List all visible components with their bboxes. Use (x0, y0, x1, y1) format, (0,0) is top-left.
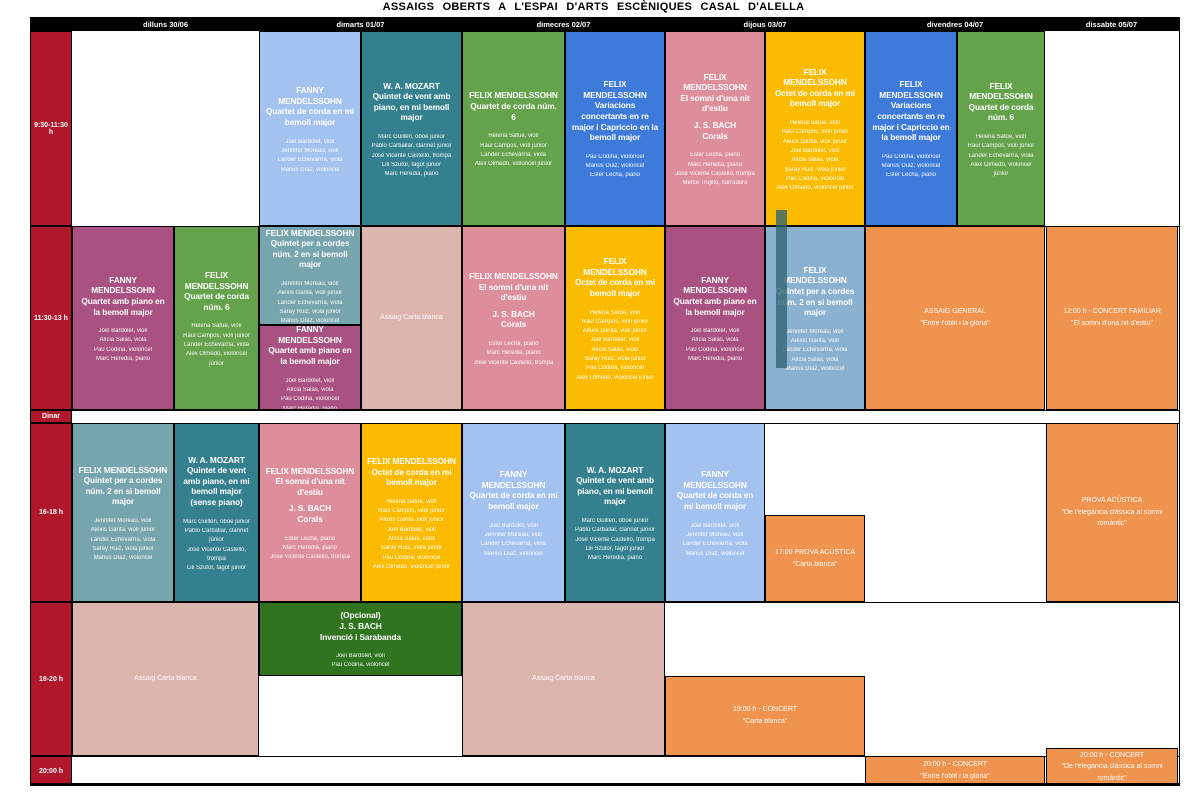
event-cell-r4-mon: Assaig Carta blanca (72, 602, 259, 756)
event-title-line: Quintet de vent amb piano, en mi bemoll … (180, 465, 253, 497)
event-title-block: FELIX MENDELSSOHNQuintet per a cordes nú… (265, 228, 355, 270)
event-performer: Helena Satué, violí (180, 322, 253, 331)
event-title-line: Quartet de corda núm. 6 (963, 102, 1039, 123)
event-title-block: Assaig Carta blanca (134, 673, 197, 685)
event-cell-r2-wed2: FELIX MENDELSSOHNOctet de corda en mi be… (565, 226, 665, 410)
time-slot-label-r2: 11:30-13 h (30, 226, 72, 410)
event-cell-r5-sat: 20:00 h - CONCERT"De l'elegància clàssic… (1046, 748, 1178, 786)
event-title-line: FANNY MENDELSSOHN (671, 469, 759, 490)
page-title: ASSAIGS OBERTS A L'ESPAI D'ARTS ESCÈNIQU… (0, 1, 1187, 13)
event-title-line: FELIX MENDELSSOHN (468, 90, 559, 101)
event-performer: Alex Olmedo, violoncel júnior (576, 374, 653, 383)
event-title-line: Octet de corda en mi bemoll major (571, 277, 659, 298)
event-title-line: Assaig Carta blanca (134, 673, 197, 685)
event-performer: Raul Campos, violí júnior (576, 318, 653, 327)
event-performer: Alícia Salas, viola (686, 336, 744, 345)
event-performer: Joel Bardolet, violí (94, 327, 152, 336)
event-title-line: 20:00 h - CONCERT (920, 759, 989, 771)
event-performer: Alexis Garita, violí júnior (277, 289, 342, 298)
day-header-dimecres: dimecres 02/07 (462, 17, 665, 31)
event-cell-r4-wed: Assaig Carta blanca (462, 602, 665, 756)
event-performer: Pau Codina, violoncel (882, 153, 941, 162)
event-performer: Alícia Salas, viola (373, 535, 450, 544)
event-performer: Joel Bardolet, violí (682, 522, 747, 531)
event-performer: Marc Heredia, piano (474, 349, 554, 358)
event-performers-list: Helena Satué, violíRaul Campos, violí jú… (576, 309, 653, 383)
event-title-line: FELIX MENDELSSOHN (671, 72, 759, 93)
event-title-block: FANNY MENDELSSOHNQuartet de corda en mi … (671, 469, 759, 511)
event-title-block: FELIX MENDELSSOHNOctet de corda en mi be… (367, 456, 456, 488)
event-performer: Alex Olmedo, violoncel júnior (475, 160, 552, 169)
event-performer: Pau Codina, violoncel (686, 346, 744, 355)
event-performers-list: Jennifer Moreau, violíAlexis Garita, vio… (277, 280, 342, 325)
event-title-block: FELIX MENDELSSOHNOctet de corda en mi be… (771, 67, 859, 109)
event-performer: Alícia Salas, viola (576, 346, 653, 355)
event-title-line: Corals (694, 131, 736, 142)
event-cell-r1-tue1: FANNY MENDELSSOHNQuartet de corda en mi … (259, 31, 361, 226)
event-performer: Lili Szutor, fagot júnior (575, 545, 655, 554)
event-performers-list: Ester Lecha, pianoMarc Heredia, pianoJos… (270, 535, 350, 563)
event-performer: Joel Bardolet, violí (576, 336, 653, 345)
event-performer: Pau Codina, violoncel (576, 364, 653, 373)
event-cell-r1-thu2: FELIX MENDELSSOHNOctet de corda en mi be… (765, 31, 865, 226)
event-title-block: 17:00 PROVA ACÚSTICA"Carta blanca" (775, 547, 855, 570)
event-title-line: Corals (492, 319, 534, 330)
event-cell-r2-thu1: FANNY MENDELSSOHNQuartet amb piano en la… (665, 226, 765, 410)
event-performers-list: Helena Satué, violíRaul Campos, violí jú… (776, 119, 853, 193)
event-performers-list: Jennifer Moreau, violíAlexis Garita, vio… (90, 517, 155, 563)
event-title-block: FELIX MENDELSSOHNEl somni d'una nit d'es… (671, 72, 759, 114)
event-performer: Marc Heredia, piano (371, 170, 451, 179)
event-title-block: J. S. BACHCorals (289, 503, 331, 524)
event-performers-list: Joel Bardolet, violíAlícia Salas, violaP… (686, 327, 744, 364)
event-performers-list: Joel Bardolet, violíAlícia Salas, violaP… (94, 327, 152, 364)
event-title-line: Quintet de vent amb piano, en mi bemoll … (571, 475, 659, 507)
event-title-line: "Carta blanca" (775, 559, 855, 571)
event-performer: Jennifer Moreau, violí (481, 531, 546, 540)
event-title-line: El somni d'una nit d'estiu (265, 476, 355, 497)
event-performer: Alex Olmedo, violoncel júnior (373, 563, 450, 572)
event-cell-r2-sat: 12:00 h - CONCERT FAMILIAR"El somni d'un… (1046, 226, 1178, 410)
event-performer: Joel Bardolet, violí (277, 138, 342, 147)
time-slot-label-r4: 18-20 h (30, 602, 72, 756)
event-performers-list: Joel Bardolet, violíPau Codina, violonce… (331, 652, 389, 671)
event-title-line: FELIX MENDELSSOHN (771, 67, 859, 88)
event-title-block: FANNY MENDELSSOHNQuartet de corda en mi … (468, 469, 559, 511)
event-title-block: FELIX MENDELSSOHNVariacions concertants … (871, 79, 951, 143)
event-title-block: FANNY MENDELSSOHNQuartet amb piano en la… (265, 325, 355, 367)
event-performer: Saray Ruiz, viola júnior (776, 166, 853, 175)
event-title-line: J. S. BACH (289, 503, 331, 514)
event-performer: Ester Lecha, piano (675, 151, 755, 160)
event-title-line: 19:00 h - CONCERT (733, 704, 797, 716)
event-title-line: FELIX MENDELSSOHN (963, 81, 1039, 102)
event-cell-r4-thu: 19:00 h - CONCERT"Carta blanca" (665, 676, 865, 756)
event-cell-r3-mon2: W. A. MOZARTQuintet de vent amb piano, e… (174, 423, 259, 602)
event-performer: José Vicente Castelló, trompa (474, 359, 554, 368)
event-performer: José Vicente Castelló, trompa (675, 170, 755, 179)
event-performers-list: Helena Satué, violíRaul Campos, violí jú… (373, 498, 450, 572)
event-title-block: Assaig Carta blanca (380, 312, 443, 324)
event-cell-r2-mon2: FELIX MENDELSSOHNQuartet de corda núm. 6… (174, 226, 259, 410)
event-performer: Ester Lecha, piano (586, 171, 645, 180)
day-header-divendres: divendres 04/07 (865, 17, 1045, 31)
event-performer: Marc Guillén, oboè júnior (371, 133, 451, 142)
vertical-accent-bar (776, 210, 787, 368)
event-cell-r1-wed1: FELIX MENDELSSOHNQuartet de corda núm. 6… (462, 31, 565, 226)
event-performer: Helena Satué, violí (475, 132, 552, 141)
row-separator-line (30, 410, 1180, 411)
event-performer: Saray Ruiz, viola júnior (277, 308, 342, 317)
event-cell-r4-tue: (Opcional)J. S. BACHInvenció i Sarabanda… (259, 602, 462, 676)
event-performer: Jennifer Moreau, violí (277, 280, 342, 289)
event-title-line: Invenció i Sarabanda (320, 632, 401, 643)
event-performer: José Vicente Castelló, trompa (270, 553, 350, 562)
event-title-line: J. S. BACH (694, 120, 736, 131)
event-cell-r2-tue2: Assaig Carta blanca (361, 226, 462, 410)
event-performer: Alex Olmedo, violoncel júnior (776, 184, 853, 193)
event-title-line: "De l'elegància clàssica al somni romànt… (1052, 761, 1172, 784)
event-title-line: "El somni d'una nit d'estiu" (1063, 318, 1161, 330)
event-title-line: PROVA ACÚSTICA (1052, 495, 1172, 507)
event-title-line: FELIX MENDELSSOHN (180, 270, 253, 291)
event-performers-list: Pau Codina, violoncelMàrius Díaz, violon… (882, 153, 941, 181)
event-title-line: Quintet per a cordes núm. 2 en si bemoll… (265, 238, 355, 270)
event-cell-r2-tue1-bottom: FANNY MENDELSSOHNQuartet amb piano en la… (259, 325, 361, 410)
event-title-line: Quartet de corda en mi bemoll major (671, 490, 759, 511)
schedule-page: ASSAIGS OBERTS A L'ESPAI D'ARTS ESCÈNIQU… (0, 0, 1187, 799)
event-title-block: FELIX MENDELSSOHNQuintet per a cordes nú… (78, 465, 168, 507)
event-title-line: "Entre l'oblit i la glòria" (920, 318, 989, 330)
event-performers-list: Helena Satué, violíRaul Campos, violí jú… (475, 132, 552, 169)
event-title-block: FELIX MENDELSSOHNEl somni d'una nit d'es… (468, 271, 559, 303)
event-title-block: FANNY MENDELSSOHNQuartet de corda en mi … (265, 85, 355, 127)
event-performer: Alícia Salas, viola (782, 356, 847, 365)
event-title-line: Assaig Carta blanca (380, 312, 443, 324)
event-title-line: "Entre l'oblit i la glòria" (920, 771, 989, 783)
event-cell-r2-wed1: FELIX MENDELSSOHNEl somni d'una nit d'es… (462, 226, 565, 410)
event-performers-list: Ester Lecha, pianoMarc Heredia, pianoJos… (474, 340, 554, 368)
event-title-block: (Opcional)J. S. BACHInvenció i Sarabanda (320, 610, 401, 642)
event-performer: Pablo Carballar, clarinet júnior (575, 526, 655, 535)
event-title-line: Quartet amb piano en la bemoll major (671, 296, 759, 317)
event-title-line: FELIX MENDELSSOHN (571, 79, 659, 100)
event-performer: Alexis Garita, violí júnior (373, 516, 450, 525)
event-performer: Mercè Trujillo, narradora (675, 179, 755, 188)
event-title-line: Quartet amb piano en la bemoll major (265, 345, 355, 366)
event-performer: Pau Codina, violoncel (373, 554, 450, 563)
event-cell-r1-wed2: FELIX MENDELSSOHNVariacions concertants … (565, 31, 665, 226)
event-title-block: FANNY MENDELSSOHNQuartet amb piano en la… (78, 275, 168, 317)
event-title-line: FANNY MENDELSSOHN (671, 275, 759, 296)
event-title-line: J. S. BACH (492, 309, 534, 320)
event-title-block: 20:00 h - CONCERT"Entre l'oblit i la glò… (920, 759, 989, 782)
event-performer: Màrius Díaz, violoncel (782, 365, 847, 374)
event-title-line: Quartet de corda núm. 6 (468, 101, 559, 122)
event-title-line: Octet de corda en mi bemoll major (771, 88, 859, 109)
event-title-line: Variacions concertants en re major i Cap… (571, 100, 659, 142)
event-performer: José Vicente Castelló, trompa (575, 536, 655, 545)
event-title-block: J. S. BACHCorals (492, 309, 534, 330)
event-performer: Pau Codina, violoncel (94, 346, 152, 355)
event-performer: José Vicente Castelló, trompa (371, 152, 451, 161)
event-cell-r3-mon1: FELIX MENDELSSOHNQuintet per a cordes nú… (72, 423, 174, 602)
event-performer: Pau Codina, violoncel (281, 395, 339, 404)
event-performer: Helena Satué, violí (963, 133, 1039, 142)
event-performers-list: Joel Bardolet, violíJennifer Moreau, vio… (682, 522, 747, 559)
event-performer: Jennifer Moreau, violí (277, 147, 342, 156)
event-performer: Màrius Díaz, violoncel (481, 550, 546, 559)
event-title-block: FANNY MENDELSSOHNQuartet amb piano en la… (671, 275, 759, 317)
event-title-line: El somni d'una nit d'estiu (671, 93, 759, 114)
event-performer: Lander Echevarría, viola (277, 299, 342, 308)
day-header-dimarts: dimarts 01/07 (259, 17, 462, 31)
event-performer: Alex Olmedo, violoncel júnior (963, 161, 1039, 180)
event-performer: Lander Echevarría, viola (180, 341, 253, 350)
event-performer: José Vicente Castelló, trompa (180, 546, 253, 565)
event-performer: Alícia Salas, viola (281, 386, 339, 395)
event-performer: Ester Lecha, piano (474, 340, 554, 349)
event-performers-list: Jennifer Moreau, violíAlexis Garita, vio… (782, 328, 847, 374)
event-performer: Lander Echevarría, viola (963, 152, 1039, 161)
event-performer: Lili Szutor, fagot júnior (180, 564, 253, 573)
event-performer: Ester Lecha, piano (270, 535, 350, 544)
event-cell-r3-tue1: FELIX MENDELSSOHNEl somni d'una nit d'es… (259, 423, 361, 602)
event-title-block: 19:00 h - CONCERT"Carta blanca" (733, 704, 797, 727)
event-performer: Màrius Díaz, violoncel (277, 317, 342, 325)
event-performer: Marc Guillén, oboè júnior (575, 517, 655, 526)
event-title-line: Quartet de corda núm. 6 (180, 291, 253, 312)
event-title-line: Quintet de vent amb piano, en mi bemoll … (367, 91, 456, 123)
event-performer: Alex Olmedo, violoncel júnior (180, 350, 253, 369)
event-performers-list: Helena Satué, violíRaul Campos, violí jú… (180, 322, 253, 368)
time-slot-label-r3: 16-18 h (30, 423, 72, 602)
event-title-line: Assaig Carta blanca (532, 673, 595, 685)
event-performer: Marc Heredia, piano (281, 405, 339, 410)
event-performer: Lili Szutor, fagot júnior (371, 161, 451, 170)
event-title-block: FELIX MENDELSSOHNQuartet de corda núm. 6 (963, 81, 1039, 123)
event-performer: Màrius Díaz, violoncel (882, 162, 941, 171)
event-performer: Joel Bardolet, violí (281, 377, 339, 386)
time-slot-label-r1: 9:30-11:30 h (30, 31, 72, 226)
event-title-line: Quintet per a cordes núm. 2 en si bemoll… (78, 475, 168, 507)
event-title-block: ASSAIG GENERAL"Entre l'oblit i la glòria… (920, 306, 989, 329)
event-performer: Alexis Garita, violí (782, 337, 847, 346)
event-performers-list: Joel Bardolet, violíJennifer Moreau, vio… (481, 522, 546, 559)
event-performer: Pau Codina, violoncel (586, 153, 645, 162)
event-cell-r2-mon1: FANNY MENDELSSOHNQuartet amb piano en la… (72, 226, 174, 410)
event-performer: Joel Bardolet, violí (686, 327, 744, 336)
event-performer: Joel Bardolet, violí (373, 526, 450, 535)
event-cell-r3-thu1: FANNY MENDELSSOHNQuartet de corda en mi … (665, 423, 765, 602)
event-cell-r2-tue1-top: FELIX MENDELSSOHNQuintet per a cordes nú… (259, 226, 361, 325)
event-title-line: 12:00 h - CONCERT FAMILIAR (1063, 306, 1161, 318)
event-performers-list: Pau Codina, violoncelMàrius Díaz, violon… (586, 153, 645, 181)
event-performer: Ester Lecha, piano (882, 171, 941, 180)
event-title-line: (Opcional) (320, 610, 401, 621)
event-title-line: ASSAIG GENERAL (920, 306, 989, 318)
event-performer: Joel Bardolet, violí (331, 652, 389, 661)
event-cell-r2-fri: ASSAIG GENERAL"Entre l'oblit i la glòria… (865, 226, 1045, 410)
event-title-block: FELIX MENDELSSOHNQuartet de corda núm. 6 (180, 270, 253, 312)
event-performer: Jennifer Moreau, violí (682, 531, 747, 540)
event-performer: Alexis Garita, violí júnior (576, 327, 653, 336)
event-performer: Lander Echevarría, viola (782, 346, 847, 355)
event-performer: Alexis Garita, violí júnior (90, 526, 155, 535)
event-performer: Pablo Carballar, clarinet júnior (371, 142, 451, 151)
day-header-dijous: dijous 03/07 (665, 17, 865, 31)
event-title-line: FANNY MENDELSSOHN (78, 275, 168, 296)
event-title-line: 17:00 PROVA ACÚSTICA (775, 547, 855, 559)
event-performer: Raul Campos, violí júnior (180, 332, 253, 341)
event-title-block: 20:00 h - CONCERT"De l'elegància clàssic… (1052, 750, 1172, 785)
event-performer: Màrius Díaz, violoncel (90, 554, 155, 563)
event-performer: Jennifer Moreau, violí (782, 328, 847, 337)
event-performer: Màrius Díaz, violoncel (277, 166, 342, 175)
event-title-line: FELIX MENDELSSOHN (265, 228, 355, 239)
event-title-line: FELIX MENDELSSOHN (78, 465, 168, 476)
event-performers-list: Ester Lecha, pianoMarc Heredia, pianoJos… (675, 151, 755, 188)
event-performer: Marc Heredia, piano (270, 544, 350, 553)
event-cell-r3-wed1: FANNY MENDELSSOHNQuartet de corda en mi … (462, 423, 565, 602)
event-title-line: Quartet amb piano en la bemoll major (78, 296, 168, 317)
event-performers-list: Marc Guillén, oboè júniorPablo Carballar… (180, 518, 253, 574)
event-performers-list: Helena Satué, violíRaul Campos, violí jú… (963, 133, 1039, 179)
event-performer: Saray Ruiz, viola júnior (90, 545, 155, 554)
event-cell-r3-thu2: 17:00 PROVA ACÚSTICA"Carta blanca" (765, 515, 865, 602)
event-cell-r3-tue2: FELIX MENDELSSOHNOctet de corda en mi be… (361, 423, 462, 602)
event-title-block: J. S. BACHCorals (694, 120, 736, 141)
event-title-line: J. S. BACH (320, 621, 401, 632)
event-performer: Lander Echevarría, viola (475, 151, 552, 160)
event-performers-list: Joel Bardolet, violíAlícia Salas, violaP… (281, 377, 339, 410)
event-performer: Joel Bardolet, violí (481, 522, 546, 531)
event-title-line: W. A. MOZART (180, 455, 253, 466)
event-title-line: (sense piano) (180, 497, 253, 508)
event-performer: Marc Heredia, piano (94, 355, 152, 364)
event-title-block: FELIX MENDELSSOHNQuartet de corda núm. 6 (468, 90, 559, 122)
day-header-dilluns: dilluns 30/06 (72, 17, 259, 31)
event-performer: Marc Guillén, oboè júnior (180, 518, 253, 527)
day-header-dissabte: dissabte 05/07 (1045, 17, 1178, 31)
event-title-block: W. A. MOZARTQuintet de vent amb piano, e… (180, 455, 253, 508)
time-slot-label-dinar: Dinar (30, 410, 72, 423)
event-performer: Helena Satué, violí (373, 498, 450, 507)
event-title-line: 20:00 h - CONCERT (1052, 750, 1172, 762)
event-title-line: FELIX MENDELSSOHN (871, 79, 951, 100)
event-performer: Saray Ruiz, viola júnior (373, 544, 450, 553)
event-performers-list: Marc Guillén, oboè júniorPablo Carballar… (575, 517, 655, 563)
event-performer: Pau Codina, violoncel (776, 175, 853, 184)
event-cell-r1-fri1: FELIX MENDELSSOHNVariacions concertants … (865, 31, 957, 226)
event-title-block: Assaig Carta blanca (532, 673, 595, 685)
event-title-block: W. A. MOZARTQuintet de vent amb piano, e… (367, 81, 456, 123)
event-title-block: FELIX MENDELSSOHNVariacions concertants … (571, 79, 659, 143)
event-performer: Marc Heredia, piano (675, 161, 755, 170)
event-title-line: Quartet de corda en mi bemoll major (468, 490, 559, 511)
event-performer: Lander Echevarría, viola (277, 156, 342, 165)
event-performer: Raul Campos, violí júnior (373, 507, 450, 516)
event-performer: Raul Campos, violí júnior (963, 142, 1039, 151)
event-title-block: FELIX MENDELSSOHNEl somni d'una nit d'es… (265, 466, 355, 498)
event-title-line: Variacions concertants en re major i Cap… (871, 100, 951, 142)
event-title-block: W. A. MOZARTQuintet de vent amb piano, e… (571, 465, 659, 507)
event-title-line: Corals (289, 514, 331, 525)
event-title-line: Octet de corda en mi bemoll major (367, 467, 456, 488)
event-performer: Lander Echevarría, viola (481, 540, 546, 549)
event-title-line: FELIX MENDELSSOHN (571, 256, 659, 277)
event-performer: Helena Satué, violí (576, 309, 653, 318)
event-cell-r3-wed2: W. A. MOZARTQuintet de vent amb piano, e… (565, 423, 665, 602)
event-title-line: W. A. MOZART (571, 465, 659, 476)
event-cell-r5-fri: 20:00 h - CONCERT"Entre l'oblit i la glò… (865, 756, 1045, 786)
event-performer: Pau Codina, violoncel (331, 661, 389, 670)
event-performer: Helena Satué, violí (776, 119, 853, 128)
event-title-line: FANNY MENDELSSOHN (265, 85, 355, 106)
event-performer: Lander Echevarría, viola (90, 536, 155, 545)
event-cell-r1-tue2: W. A. MOZARTQuintet de vent amb piano, e… (361, 31, 462, 226)
event-title-line: FANNY MENDELSSOHN (265, 325, 355, 345)
event-performer: Màrius Díaz, violoncel (682, 550, 747, 559)
event-cell-r3-sat: PROVA ACÚSTICA"De l'elegància clàssica a… (1046, 423, 1178, 602)
event-performer: Raul Campos, violí júnior (475, 142, 552, 151)
event-performer: Saray Ruiz, viola júnior (576, 355, 653, 364)
event-title-line: "De l'elegància clàssica al somni romànt… (1052, 507, 1172, 530)
event-performer: Marc Heredia, piano (686, 355, 744, 364)
event-performer: Alícia Salas, viola (776, 156, 853, 165)
event-title-block: FELIX MENDELSSOHNOctet de corda en mi be… (571, 256, 659, 298)
event-title-block: PROVA ACÚSTICA"De l'elegància clàssica a… (1052, 495, 1172, 530)
event-title-block: 12:00 h - CONCERT FAMILIAR"El somni d'un… (1063, 306, 1161, 329)
event-performers-list: Joel Bardolet, violíJennifer Moreau, vio… (277, 138, 342, 175)
event-title-line: El somni d'una nit d'estiu (468, 282, 559, 303)
event-performer: Alexis Garita, violí júnior (776, 138, 853, 147)
event-title-line: FELIX MENDELSSOHN (367, 456, 456, 467)
event-cell-r1-fri2: FELIX MENDELSSOHNQuartet de corda núm. 6… (957, 31, 1045, 226)
event-performers-list: Marc Guillén, oboè júniorPablo Carballar… (371, 133, 451, 179)
event-title-line: FELIX MENDELSSOHN (468, 271, 559, 282)
event-performer: Pablo Carballar, clarinet júnior (180, 527, 253, 546)
time-slot-label-r5: 20:00 h (30, 756, 72, 786)
event-performer: Lander Echevarría, viola (682, 540, 747, 549)
event-performer: Alícia Salas, viola (94, 336, 152, 345)
event-title-line: Quartet de corda en mi bemoll major (265, 106, 355, 127)
event-title-line: FANNY MENDELSSOHN (468, 469, 559, 490)
event-title-line: W. A. MOZART (367, 81, 456, 92)
event-title-line: FELIX MENDELSSOHN (265, 466, 355, 477)
event-performer: Jennifer Moreau, violí (90, 517, 155, 526)
event-performer: Marc Heredia, piano (575, 554, 655, 563)
event-performer: Joel Bardolet, violí (776, 147, 853, 156)
event-title-line: "Carta blanca" (733, 716, 797, 728)
event-cell-r1-thu1: FELIX MENDELSSOHNEl somni d'una nit d'es… (665, 31, 765, 226)
event-performer: Màrius Díaz, violoncel (586, 162, 645, 171)
event-performer: Raul Campos, violí júnior (776, 128, 853, 137)
